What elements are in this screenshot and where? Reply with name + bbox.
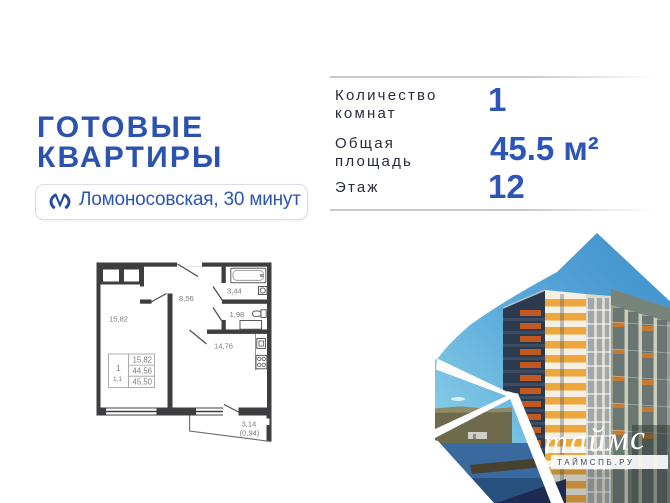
svg-text:ТАЙМСПБ.РУ: ТАЙМСПБ.РУ	[557, 458, 635, 467]
